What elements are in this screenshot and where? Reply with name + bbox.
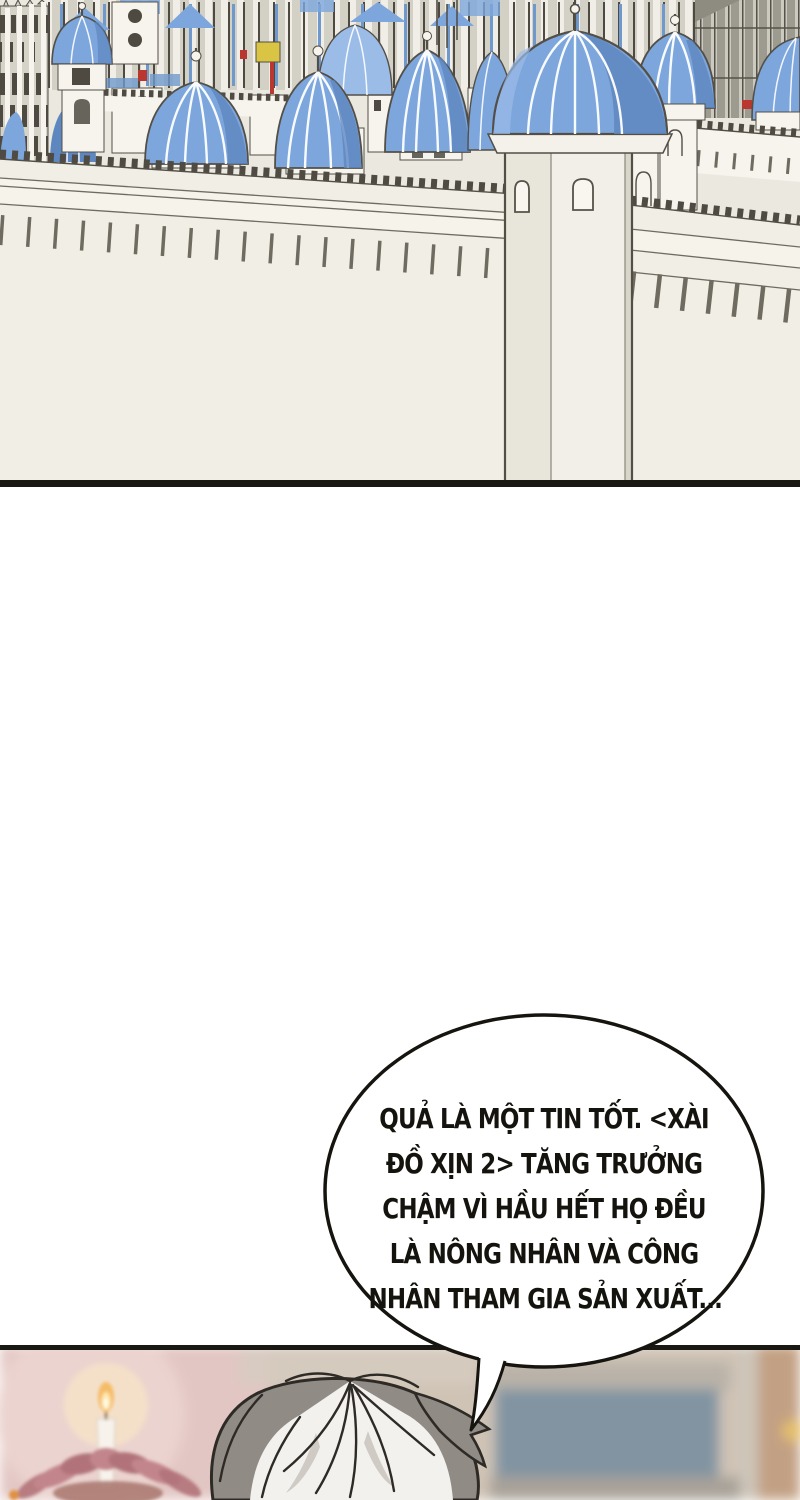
speech-bubble-text: QUẢ LÀ MỘT TIN TỐT. <XÀI ĐỒ XỊN 2> TĂNG … xyxy=(369,1096,720,1321)
rose-window xyxy=(128,9,142,23)
bubble-line: LÀ NÔNG NHÂN VÀ CÔNG xyxy=(369,1231,720,1276)
panel-border-bottom xyxy=(0,480,800,487)
castle-panel-illustration xyxy=(0,0,800,487)
tower-window xyxy=(573,179,593,210)
comic-page: QUẢ LÀ MỘT TIN TỐT. <XÀI ĐỒ XỊN 2> TĂNG … xyxy=(0,0,800,1500)
city-wall-right xyxy=(630,200,800,487)
upper-right-wall xyxy=(695,124,800,182)
yellow-building xyxy=(256,42,280,62)
bubble-line: ĐỒ XỊN 2> TĂNG TRƯỞNG xyxy=(369,1141,720,1186)
bubble-line: QUẢ LÀ MỘT TIN TỐT. <XÀI xyxy=(369,1096,720,1141)
bubble-line: NHÂN THAM GIA SẢN XUẤT... xyxy=(369,1276,720,1321)
red-flag xyxy=(138,70,147,81)
city-wall-left xyxy=(0,154,560,487)
tower-window xyxy=(515,181,529,212)
dome-finial xyxy=(571,5,580,14)
bubble-line: CHẬM VÌ HẦU HẾT HỌ ĐỀU xyxy=(369,1186,720,1231)
